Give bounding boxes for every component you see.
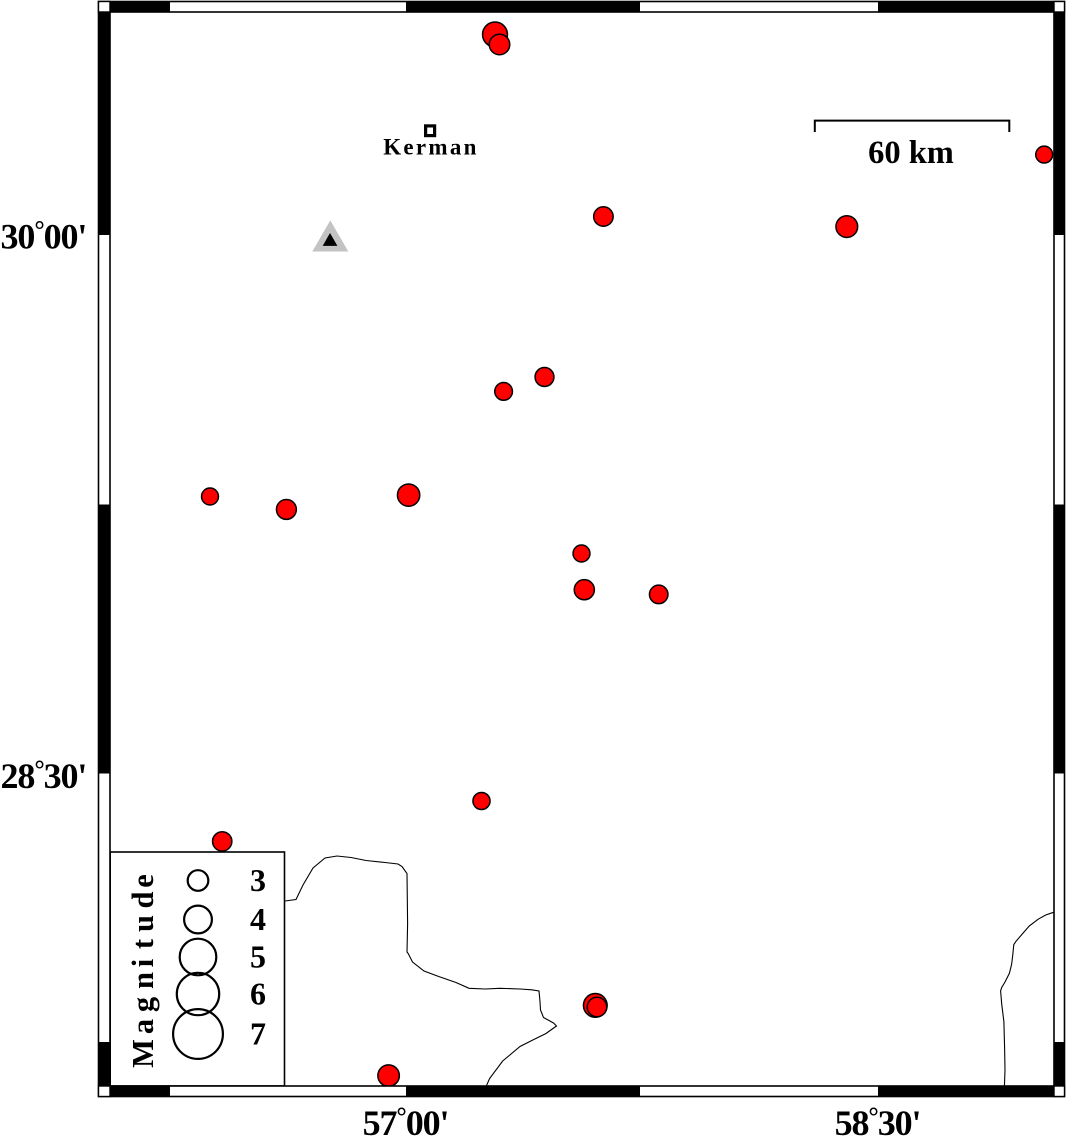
svg-text:7: 7 (250, 1016, 266, 1052)
svg-text:60 km: 60 km (868, 135, 954, 171)
svg-text:g: g (126, 997, 160, 1012)
svg-text:M: M (126, 1039, 160, 1068)
svg-text:28°30': 28°30' (1, 755, 87, 796)
svg-text:a: a (126, 1019, 160, 1034)
svg-text:58°30': 58°30' (835, 1102, 921, 1136)
svg-text:6: 6 (250, 976, 266, 1012)
svg-text:d: d (126, 891, 160, 908)
svg-text:e: e (126, 874, 160, 888)
svg-text:i: i (126, 958, 160, 967)
svg-text:3: 3 (250, 862, 266, 898)
svg-text:Kerman: Kerman (383, 135, 479, 160)
svg-text:4: 4 (250, 901, 266, 937)
svg-text:5: 5 (250, 939, 266, 975)
svg-text:u: u (126, 915, 160, 932)
svg-text:n: n (126, 972, 160, 989)
svg-text:30°00': 30°00' (1, 216, 87, 257)
svg-text:57°00': 57°00' (363, 1102, 449, 1136)
svg-text:t: t (126, 938, 160, 949)
